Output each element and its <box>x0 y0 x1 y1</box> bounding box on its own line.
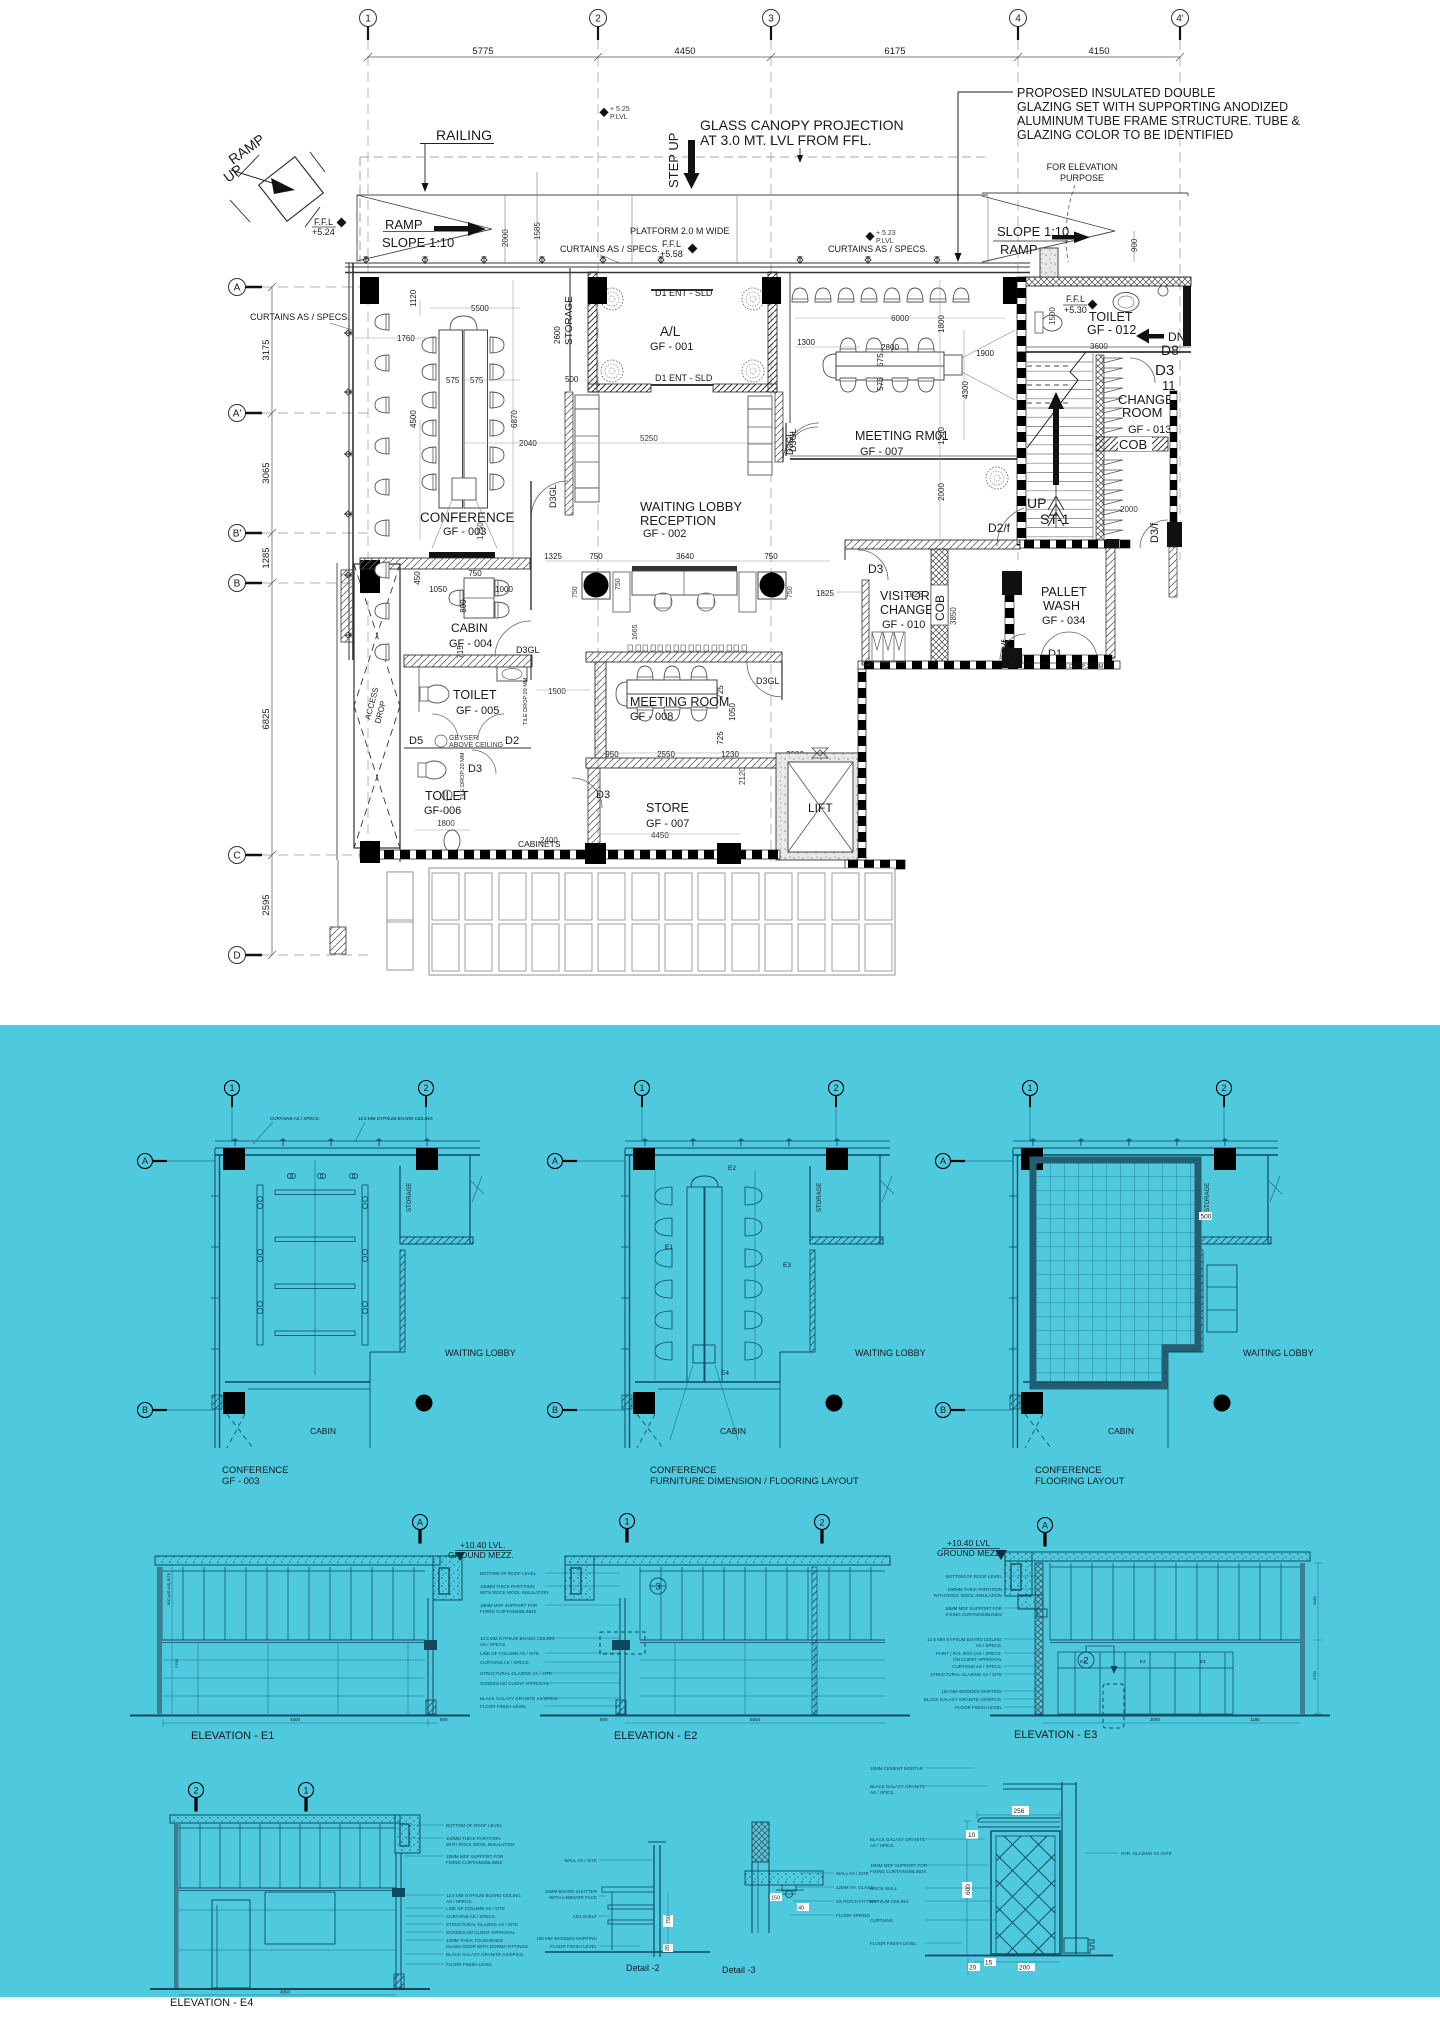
svg-text:CONFERENCE: CONFERENCE <box>1035 1465 1102 1476</box>
svg-text:1185: 1185 <box>1250 1717 1260 1722</box>
svg-text:5564: 5564 <box>750 1717 761 1722</box>
svg-text:FIXING CURTAINS/BLINDS: FIXING CURTAINS/BLINDS <box>446 1860 502 1865</box>
svg-text:BLACK GALAXY GRANITE: BLACK GALAXY GRANITE <box>870 1837 925 1842</box>
svg-text:1060: 1060 <box>1312 1595 1317 1605</box>
svg-text:CABINETS: CABINETS <box>518 839 561 849</box>
svg-text:1825: 1825 <box>816 589 834 598</box>
svg-text:1120: 1120 <box>409 289 418 307</box>
svg-text:950: 950 <box>605 750 619 759</box>
svg-text:AS / SPECS.: AS / SPECS. <box>976 1643 1002 1648</box>
svg-text:B: B <box>234 579 241 590</box>
svg-text:ELEVATION - E1: ELEVATION - E1 <box>191 1730 274 1742</box>
svg-text:CABIN: CABIN <box>451 621 488 635</box>
svg-text:B: B <box>940 1405 946 1415</box>
svg-text:D: D <box>233 951 240 962</box>
svg-text:2800: 2800 <box>881 343 899 352</box>
svg-text:FIXING CURTAINS/BLINDS: FIXING CURTAINS/BLINDS <box>946 1612 1002 1617</box>
svg-text:1500: 1500 <box>1048 307 1057 325</box>
svg-text:WITH ROCK WOOL INSULATION: WITH ROCK WOOL INSULATION <box>933 1593 1002 1598</box>
svg-text:2: 2 <box>595 14 601 25</box>
svg-text:STRUCTURAL GLAZING AS / SITE: STRUCTURAL GLAZING AS / SITE <box>446 1922 518 1927</box>
svg-text:2750: 2750 <box>174 1658 179 1668</box>
svg-text:3640: 3640 <box>676 552 694 561</box>
svg-text:AT 3.0 MT. LVL FROM FFL.: AT 3.0 MT. LVL FROM FFL. <box>700 132 871 148</box>
svg-text:1800: 1800 <box>937 315 946 333</box>
svg-text:1300: 1300 <box>797 338 815 347</box>
svg-text:FIXING CURTAINS/BLINDS: FIXING CURTAINS/BLINDS <box>870 1869 926 1874</box>
svg-text:WAITING LOBBY: WAITING LOBBY <box>1243 1348 1314 1358</box>
svg-text:AS / SPICS.: AS / SPICS. <box>870 1790 895 1795</box>
svg-text:GF - 010: GF - 010 <box>882 619 925 631</box>
svg-text:GEYSER: GEYSER <box>449 735 478 742</box>
svg-text:STORAGE: STORAGE <box>817 1183 823 1212</box>
svg-text:2: 2 <box>423 1083 428 1093</box>
svg-text:A: A <box>1042 1520 1048 1530</box>
svg-text:2: 2 <box>193 1785 198 1795</box>
svg-text:ELEVATION - E3: ELEVATION - E3 <box>1014 1729 1097 1741</box>
svg-text:ELEVATION - E2: ELEVATION - E2 <box>614 1730 697 1742</box>
svg-text:PROPOSED INSULATED DOUBLE: PROPOSED INSULATED DOUBLE <box>1017 86 1215 100</box>
svg-text:LINE OF COLUMN AS / SITE: LINE OF COLUMN AS / SITE <box>446 1906 505 1911</box>
svg-text:18MM MDF SUPPORT FOR: 18MM MDF SUPPORT FOR <box>870 1863 928 1868</box>
svg-text:256: 256 <box>1014 1808 1025 1815</box>
svg-text:STORAGE: STORAGE <box>564 296 575 345</box>
svg-text:CONFERENCE: CONFERENCE <box>222 1465 289 1476</box>
svg-text:1825: 1825 <box>905 590 923 599</box>
svg-text:CURTAINS AS / SPECS.: CURTAINS AS / SPECS. <box>828 244 928 254</box>
svg-text:100MM THICK PARTITION: 100MM THICK PARTITION <box>947 1587 1002 1592</box>
svg-text:1: 1 <box>1027 1083 1032 1093</box>
svg-text:D3: D3 <box>868 562 884 576</box>
svg-text:D3: D3 <box>468 763 482 775</box>
svg-text:750: 750 <box>468 569 482 578</box>
svg-text:COB: COB <box>933 595 947 621</box>
svg-text:CABIN: CABIN <box>310 1426 336 1436</box>
svg-text:FLOOR FINISH LEVEL: FLOOR FINISH LEVEL <box>955 1705 1002 1710</box>
svg-text:WITH ROCK WOOL INSULATION: WITH ROCK WOOL INSULATION <box>480 1590 549 1595</box>
svg-text:GF - 012: GF - 012 <box>1087 323 1136 337</box>
svg-text:GYPSUM CEILING: GYPSUM CEILING <box>870 1899 909 1904</box>
svg-text:ROOM: ROOM <box>1122 405 1162 420</box>
svg-text:UP: UP <box>1027 495 1046 511</box>
svg-text:AS / SPECS.: AS / SPECS. <box>446 1899 472 1904</box>
svg-text:ELEVATION - E4: ELEVATION - E4 <box>170 1997 253 2009</box>
svg-text:A: A <box>234 283 241 294</box>
svg-text:WALL AS / SITE: WALL AS / SITE <box>836 1871 869 1876</box>
svg-text:18MM MDF SUPPORT FOR: 18MM MDF SUPPORT FOR <box>945 1606 1003 1611</box>
svg-text:GF - 007: GF - 007 <box>646 818 689 830</box>
svg-text:12.5 MM GYPSUM BOARD CEILING: 12.5 MM GYPSUM BOARD CEILING <box>927 1637 1002 1642</box>
svg-text:1325: 1325 <box>544 552 562 561</box>
svg-text:STRUCTURAL GLAZING AS / SITE: STRUCTURAL GLAZING AS / SITE <box>930 1672 1002 1677</box>
svg-text:2120: 2120 <box>738 767 747 785</box>
svg-text:1800: 1800 <box>437 819 455 828</box>
svg-text:RAILING: RAILING <box>436 127 492 143</box>
svg-text:D2/f: D2/f <box>988 521 1011 535</box>
svg-text:750: 750 <box>764 552 778 561</box>
svg-text:12.5 MM GYPSUM BOARD CEILING: 12.5 MM GYPSUM BOARD CEILING <box>480 1636 555 1641</box>
svg-text:3: 3 <box>768 14 774 25</box>
svg-text:+ 5.25: + 5.25 <box>610 106 630 113</box>
svg-text:FLOOR FINISH LEVEL: FLOOR FINISH LEVEL <box>550 1944 597 1949</box>
svg-text:COB: COB <box>1119 437 1147 452</box>
svg-text:3175: 3175 <box>261 339 272 360</box>
svg-text:WALL AS / SITE: WALL AS / SITE <box>564 1858 597 1863</box>
svg-text:BLACK GALAXY GRANITE AS/SPICS.: BLACK GALAXY GRANITE AS/SPICS. <box>924 1697 1002 1702</box>
svg-text:4450: 4450 <box>674 46 695 57</box>
svg-text:3065: 3065 <box>261 462 272 483</box>
svg-text:WASH: WASH <box>1043 599 1080 613</box>
svg-text:E3: E3 <box>1140 1659 1146 1664</box>
svg-text:40: 40 <box>798 1906 804 1912</box>
svg-text:CURTAINS AS / SPECS.: CURTAINS AS / SPECS. <box>480 1660 530 1665</box>
svg-text:2750: 2750 <box>1312 1670 1317 1680</box>
svg-text:100MM THICK PARTITION: 100MM THICK PARTITION <box>480 1584 535 1589</box>
svg-text:PURPOSE: PURPOSE <box>1060 173 1104 183</box>
svg-text:750: 750 <box>589 552 603 561</box>
svg-text:D3GL: D3GL <box>756 676 780 686</box>
svg-text:1: 1 <box>624 1516 629 1526</box>
svg-text:3850: 3850 <box>949 607 958 625</box>
svg-text:A: A <box>552 1156 558 1166</box>
svg-text:ON CLIENT APPROVAL: ON CLIENT APPROVAL <box>953 1657 1002 1662</box>
svg-text:STORAGE: STORAGE <box>1205 1183 1211 1212</box>
svg-text:WAITING LOBBY: WAITING LOBBY <box>640 499 742 514</box>
svg-text:150: 150 <box>771 1896 780 1902</box>
svg-text:1900: 1900 <box>976 349 994 358</box>
svg-text:GLASS DOOR WITH DORMA FITTINGS: GLASS DOOR WITH DORMA FITTINGS <box>446 1944 528 1949</box>
svg-text:D3GL: D3GL <box>548 484 558 508</box>
svg-text:FIXING CURTAINS/BLINDS: FIXING CURTAINS/BLINDS <box>480 1609 536 1614</box>
svg-text:750: 750 <box>572 586 579 598</box>
svg-text:1585: 1585 <box>533 222 542 240</box>
svg-text:A': A' <box>233 409 242 420</box>
svg-text:GF - 008: GF - 008 <box>630 711 673 723</box>
svg-text:18MM MDF SUPPORT FOR: 18MM MDF SUPPORT FOR <box>446 1854 504 1859</box>
svg-text:WITH LAMINATE FACE: WITH LAMINATE FACE <box>549 1895 597 1900</box>
svg-text:F.F.L: F.F.L <box>662 239 681 249</box>
svg-text:STORAGE: STORAGE <box>407 1183 413 1212</box>
svg-text:PLATFORM 2.0 M WIDE: PLATFORM 2.0 M WIDE <box>630 226 729 236</box>
svg-text:750: 750 <box>787 586 794 598</box>
svg-text:2000: 2000 <box>937 483 946 501</box>
svg-text:D2: D2 <box>505 735 519 747</box>
svg-text:4150: 4150 <box>1088 46 1109 57</box>
svg-text:5500: 5500 <box>471 304 489 313</box>
svg-text:19MM BOARD SHUTTER: 19MM BOARD SHUTTER <box>545 1889 598 1894</box>
svg-text:2595: 2595 <box>261 894 272 915</box>
svg-text:1050: 1050 <box>429 585 447 594</box>
svg-text:A/L: A/L <box>660 324 681 339</box>
svg-text:CONFERENCE: CONFERENCE <box>420 510 515 525</box>
svg-text:WITH ROCK WOOL INSULATION: WITH ROCK WOOL INSULATION <box>446 1842 515 1847</box>
svg-text:GF - 013: GF - 013 <box>1128 424 1171 436</box>
svg-text:GLASS CANOPY PROJECTION: GLASS CANOPY PROJECTION <box>700 117 904 133</box>
svg-text:AS / SPECS.: AS / SPECS. <box>480 1642 506 1647</box>
svg-text:LINE OF COLUMN AS / SITE: LINE OF COLUMN AS / SITE <box>480 1651 539 1656</box>
svg-text:+5.24: +5.24 <box>312 227 335 237</box>
svg-text:BOTTOM OF ROOF LEVEL: BOTTOM OF ROOF LEVEL <box>946 1574 1003 1579</box>
svg-text:D8: D8 <box>1161 342 1179 358</box>
svg-text:Detail -2: Detail -2 <box>626 1963 660 1973</box>
svg-text:D3/f: D3/f <box>1149 522 1161 543</box>
svg-text:1760: 1760 <box>397 334 415 343</box>
svg-text:TOILET: TOILET <box>1089 310 1133 324</box>
svg-text:D1 ENT - SLD: D1 ENT - SLD <box>655 288 713 298</box>
svg-text:ST-1: ST-1 <box>1040 511 1070 527</box>
svg-text:WAITING LOBBY: WAITING LOBBY <box>855 1348 926 1358</box>
svg-text:6825: 6825 <box>261 708 272 729</box>
svg-text:150 MM WOODEN SKIRTING: 150 MM WOODEN SKIRTING <box>941 1689 1002 1694</box>
svg-text:1250: 1250 <box>476 522 485 540</box>
svg-text:GF - 005: GF - 005 <box>456 705 499 717</box>
svg-text:800: 800 <box>459 599 468 613</box>
svg-text:LIFT: LIFT <box>808 801 833 815</box>
svg-text:BOTTOM OF ROOF LEVEL: BOTTOM OF ROOF LEVEL <box>446 1823 503 1828</box>
svg-text:CHANGE: CHANGE <box>880 603 933 617</box>
svg-text:4500: 4500 <box>409 410 418 428</box>
svg-text:3050: 3050 <box>1150 1717 1161 1722</box>
svg-text:+10.40 LVL: +10.40 LVL <box>947 1538 990 1548</box>
svg-text:PALLET: PALLET <box>1041 585 1087 599</box>
svg-text:BOTTOM OF ROOF LEVEL: BOTTOM OF ROOF LEVEL <box>480 1571 537 1576</box>
svg-text:15: 15 <box>985 1960 993 1967</box>
svg-text:4300: 4300 <box>961 381 970 399</box>
svg-text:100MM THICK PARTITION: 100MM THICK PARTITION <box>446 1836 501 1841</box>
svg-text:FURNITURE DIMENSION / FLOORIN: FURNITURE DIMENSION / FLOORING LAYOUT <box>650 1476 859 1487</box>
svg-text:3600: 3600 <box>1090 342 1108 351</box>
svg-text:575: 575 <box>876 377 885 391</box>
svg-text:1285: 1285 <box>261 547 272 568</box>
svg-text:D1 ENT - SLD: D1 ENT - SLD <box>655 373 713 383</box>
svg-text:PAINT ( RAL 9010 )AS / SPECS-: PAINT ( RAL 9010 )AS / SPECS- <box>936 1651 1002 1656</box>
svg-text:CURTAINS AS / SPECS.: CURTAINS AS / SPECS. <box>446 1914 496 1919</box>
svg-text:900: 900 <box>1130 238 1139 252</box>
svg-text:D3GL: D3GL <box>516 645 540 655</box>
svg-text:ALUMINUM TUBE FRAME STRUCTURE.: ALUMINUM TUBE FRAME STRUCTURE. TUBE & <box>1017 114 1301 128</box>
svg-text:1665: 1665 <box>632 624 639 640</box>
svg-text:CONFERENCE: CONFERENCE <box>650 1465 717 1476</box>
svg-text:TILE DROP:20 MM: TILE DROP:20 MM <box>523 677 529 725</box>
svg-text:GLAZING COLOR TO BE IDENTIFIED: GLAZING COLOR TO BE IDENTIFIED <box>1017 128 1233 142</box>
svg-text:GLAZING SET WITH SUPPORTING AN: GLAZING SET WITH SUPPORTING ANODIZED <box>1017 100 1288 114</box>
svg-text:E1: E1 <box>665 1244 673 1251</box>
svg-text:FLOOR FINISH LEVEL: FLOOR FINISH LEVEL <box>480 1704 527 1709</box>
svg-text:A: A <box>142 1156 148 1166</box>
svg-text:B: B <box>142 1405 148 1415</box>
svg-text:600: 600 <box>965 1884 972 1895</box>
svg-text:12.5 MM GYPSUM BOARD CEILING: 12.5 MM GYPSUM BOARD CEILING <box>358 1116 433 1121</box>
svg-text:2040: 2040 <box>519 439 537 448</box>
svg-text:1: 1 <box>303 1785 308 1795</box>
svg-text:4600: 4600 <box>290 1717 301 1722</box>
svg-text:TOILET: TOILET <box>453 688 497 702</box>
svg-text:ADJ.SHELF: ADJ.SHELF <box>573 1914 598 1919</box>
svg-text:MEETING RM01: MEETING RM01 <box>855 429 949 443</box>
svg-text:4450: 4450 <box>651 831 669 840</box>
svg-text:1: 1 <box>639 1083 644 1093</box>
svg-text:6175: 6175 <box>884 46 905 57</box>
svg-text:CURTAINS AS / SPECS.: CURTAINS AS / SPECS. <box>560 244 660 254</box>
svg-text:MEETING ROOM: MEETING ROOM <box>630 695 729 709</box>
svg-text:D3: D3 <box>1155 362 1174 379</box>
svg-text:C: C <box>233 851 240 862</box>
svg-text:18MM MDF SUPPORT FOR: 18MM MDF SUPPORT FOR <box>480 1603 538 1608</box>
svg-text:GF - 034: GF - 034 <box>1042 615 1085 627</box>
svg-text:10: 10 <box>968 1832 976 1839</box>
svg-text:TILE DROP:20 MM: TILE DROP:20 MM <box>460 752 466 800</box>
svg-text:B: B <box>552 1405 558 1415</box>
svg-text:E3: E3 <box>1200 1659 1206 1664</box>
svg-text:BLACK GALAXY GRANITE AS/SPICS.: BLACK GALAXY GRANITE AS/SPICS. <box>446 1952 524 1957</box>
svg-text:2600: 2600 <box>553 326 562 344</box>
svg-text:750: 750 <box>615 578 622 590</box>
svg-text:150 MM WOODEN SKIRTING: 150 MM WOODEN SKIRTING <box>536 1936 597 1941</box>
svg-text:TILE DROP:20 MM: TILE DROP:20 MM <box>1056 664 1104 670</box>
svg-text:12MM TH. GLASS: 12MM TH. GLASS <box>836 1885 873 1890</box>
svg-text:SCREEN AS/ CLIENT APPROVAL: SCREEN AS/ CLIENT APPROVAL <box>446 1930 516 1935</box>
svg-text:4950: 4950 <box>280 1990 291 1995</box>
svg-text:5250: 5250 <box>640 434 658 443</box>
svg-text:STR. GLAZING AS /SITE: STR. GLAZING AS /SITE <box>1121 1851 1172 1856</box>
svg-text:12.5 MM GYPSUM BOARD CEILING: 12.5 MM GYPSUM BOARD CEILING <box>446 1893 521 1898</box>
svg-text:P.LVL: P.LVL <box>610 114 628 121</box>
svg-text:2000: 2000 <box>501 229 510 247</box>
svg-text:1000: 1000 <box>495 585 513 594</box>
svg-text:GROUND MEZZ: GROUND MEZZ <box>937 1548 1000 1558</box>
svg-text:2000: 2000 <box>1120 505 1138 514</box>
svg-text:750: 750 <box>666 1915 672 1924</box>
svg-text:FLOOR FINISH LEVEL: FLOOR FINISH LEVEL <box>446 1962 493 1967</box>
svg-text:500: 500 <box>565 375 579 384</box>
svg-text:D3: D3 <box>596 789 610 801</box>
svg-text:CABIN: CABIN <box>1108 1426 1134 1436</box>
svg-text:STEP UP: STEP UP <box>666 133 681 188</box>
svg-text:3: 3 <box>655 1582 660 1592</box>
svg-text:500: 500 <box>1201 1214 1212 1221</box>
svg-text:2: 2 <box>833 1083 838 1093</box>
svg-text:A: A <box>417 1517 423 1527</box>
svg-text:SLOPE 1:10: SLOPE 1:10 <box>382 235 454 250</box>
svg-text:+ 5.23: + 5.23 <box>876 230 896 237</box>
svg-text:+10.40 LVL.: +10.40 LVL. <box>460 1540 505 1550</box>
svg-text:E4: E4 <box>721 1370 729 1377</box>
svg-text:E2: E2 <box>728 1165 736 1172</box>
svg-text:+5.30: +5.30 <box>1064 305 1087 315</box>
svg-text:12MM THICK TOUGHENED: 12MM THICK TOUGHENED <box>446 1938 504 1943</box>
svg-text:575: 575 <box>876 353 885 367</box>
svg-text:FOR ELEVATION: FOR ELEVATION <box>1047 162 1118 172</box>
svg-text:900 (AR.AS) SITE: 900 (AR.AS) SITE <box>166 1572 171 1605</box>
svg-text:GF - 003: GF - 003 <box>222 1476 260 1487</box>
svg-text:575: 575 <box>446 376 460 385</box>
svg-text:5775: 5775 <box>472 46 493 57</box>
svg-text:D3GL: D3GL <box>788 428 798 452</box>
svg-text:4: 4 <box>1015 14 1021 25</box>
svg-text:BRICK WALL: BRICK WALL <box>870 1886 898 1891</box>
svg-text:1050: 1050 <box>728 703 737 721</box>
svg-text:STRUCTURAL GLAZING AS / SITE: STRUCTURAL GLAZING AS / SITE <box>480 1671 552 1676</box>
svg-text:D3/f: D3/f <box>1000 639 1012 660</box>
svg-text:FLOORING LAYOUT: FLOORING LAYOUT <box>1035 1476 1125 1487</box>
svg-text:A: A <box>940 1156 946 1166</box>
svg-text:1300: 1300 <box>937 427 946 445</box>
svg-text:SCREEN AS/ CLIENT APPROVAL: SCREEN AS/ CLIENT APPROVAL <box>480 1681 550 1686</box>
svg-text:B': B' <box>233 529 242 540</box>
svg-text:20: 20 <box>969 1965 977 1972</box>
svg-text:725: 725 <box>716 685 725 699</box>
svg-text:F.F.L: F.F.L <box>1066 294 1085 304</box>
svg-text:725: 725 <box>716 731 725 745</box>
svg-text:4': 4' <box>1176 14 1184 25</box>
svg-text:RAMP: RAMP <box>385 217 423 232</box>
svg-text:D5: D5 <box>409 735 423 747</box>
svg-text:6000: 6000 <box>891 314 909 323</box>
svg-text:F.F.L: F.F.L <box>314 217 333 227</box>
svg-text:FLOOR FINISH LEVEL: FLOOR FINISH LEVEL <box>870 1941 917 1946</box>
svg-text:BLACK GALAXY GRANITE: BLACK GALAXY GRANITE <box>870 1784 925 1789</box>
svg-text:600: 600 <box>600 1717 608 1722</box>
svg-text:CURTAINS AS / SPECS.: CURTAINS AS / SPECS. <box>952 1664 1002 1669</box>
svg-text:GF - 001: GF - 001 <box>650 341 693 353</box>
svg-text:FLOOR SPRING: FLOOR SPRING <box>836 1913 871 1918</box>
svg-text:1230: 1230 <box>721 750 739 759</box>
svg-text:GF-006: GF-006 <box>424 805 461 817</box>
svg-text:2: 2 <box>819 1517 824 1527</box>
svg-text:575: 575 <box>470 376 484 385</box>
svg-text:+5.58: +5.58 <box>660 249 683 259</box>
svg-text:1: 1 <box>365 14 371 25</box>
svg-text:20: 20 <box>665 1945 671 1951</box>
svg-text:Detail -3: Detail -3 <box>722 1965 756 1975</box>
svg-text:1500: 1500 <box>548 687 566 696</box>
svg-text:GF - 002: GF - 002 <box>643 528 686 540</box>
svg-text:E3: E3 <box>783 1262 791 1269</box>
svg-text:RAMP: RAMP <box>1000 242 1038 257</box>
svg-text:CURTAINS AS / SPECS.: CURTAINS AS / SPECS. <box>270 1116 320 1121</box>
svg-text:2: 2 <box>1221 1083 1226 1093</box>
svg-text:BLACK GALAXY GRANITE AS/SPICS.: BLACK GALAXY GRANITE AS/SPICS. <box>480 1696 558 1701</box>
svg-text:STORE: STORE <box>646 801 689 815</box>
svg-text:450: 450 <box>413 571 422 585</box>
svg-text:AS / SPICS.: AS / SPICS. <box>870 1843 895 1848</box>
svg-text:600: 600 <box>440 1717 448 1722</box>
svg-text:WAITING LOBBY: WAITING LOBBY <box>445 1348 516 1358</box>
svg-text:CABIN: CABIN <box>720 1426 746 1436</box>
svg-text:CURTAINS AS / SPECS.: CURTAINS AS / SPECS. <box>250 312 350 322</box>
svg-text:CURTAINS: CURTAINS <box>870 1918 893 1923</box>
svg-text:2: 2 <box>1083 1656 1088 1666</box>
svg-text:6870: 6870 <box>510 410 519 428</box>
svg-text:2550: 2550 <box>657 750 675 759</box>
svg-text:200: 200 <box>1019 1965 1030 1972</box>
svg-text:1: 1 <box>229 1083 234 1093</box>
svg-text:15MM CEMENT MORTAR: 15MM CEMENT MORTAR <box>870 1766 924 1771</box>
svg-text:RECEPTION: RECEPTION <box>640 513 716 528</box>
